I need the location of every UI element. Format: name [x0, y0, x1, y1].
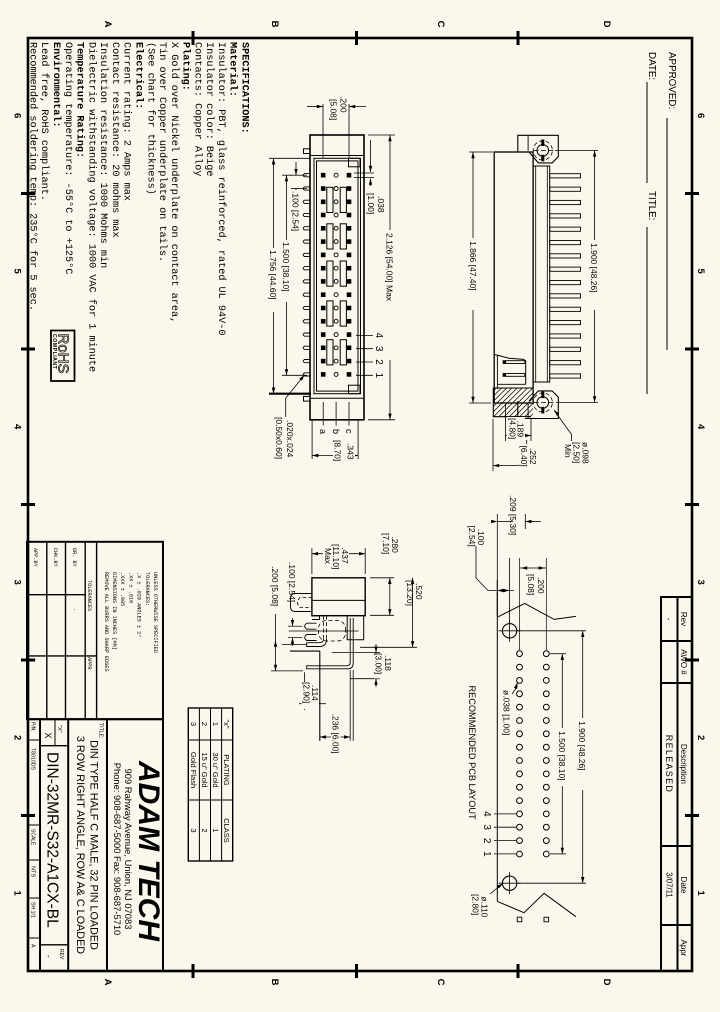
- svg-text:Date: Date: [679, 877, 688, 894]
- svg-text:3: 3: [373, 346, 384, 352]
- svg-text:[2.80]: [2.80]: [471, 894, 481, 915]
- svg-text:COMPLIANT: COMPLIANT: [51, 334, 57, 370]
- svg-text:2: 2: [200, 722, 209, 726]
- svg-text:2.126 [54.00] Max: 2.126 [54.00] Max: [385, 233, 395, 302]
- svg-text:Plating:: Plating:: [180, 42, 192, 91]
- svg-text:CHK.BY: CHK.BY: [52, 548, 58, 568]
- svg-text:[0.50x0.60]: [0.50x0.60]: [274, 417, 284, 459]
- svg-text:[5.08]: [5.08]: [329, 99, 339, 120]
- svg-text:-: -: [32, 658, 38, 661]
- svg-text:Min: Min: [563, 444, 573, 458]
- svg-text:"X": "X": [56, 725, 62, 733]
- svg-text:"x": "x": [222, 719, 231, 728]
- svg-text:1.756 [44.60]: 1.756 [44.60]: [268, 250, 278, 300]
- svg-text:b: b: [331, 429, 341, 434]
- svg-text:TITLE:: TITLE:: [98, 723, 104, 739]
- svg-text:AWO #: AWO #: [679, 649, 688, 675]
- svg-text:Appr: Appr: [679, 940, 688, 957]
- svg-text:.200 [5.08]: .200 [5.08]: [270, 566, 280, 606]
- svg-text:Contacts: Copper Alloy: Contacts: Copper Alloy: [191, 42, 203, 177]
- svg-text:.XXX ± .005: .XXX ± .005: [119, 572, 125, 606]
- svg-text:3/07/11: 3/07/11: [665, 872, 674, 897]
- svg-text:.100 [2.54]: .100 [2.54]: [291, 191, 301, 231]
- svg-text:(See chart for thickness): (See chart for thickness): [144, 42, 156, 195]
- svg-text:Dielectric withstanding voltag: Dielectric withstanding voltage: 1000 VA…: [85, 42, 97, 372]
- svg-text:B: B: [269, 979, 280, 986]
- svg-text:REV: REV: [58, 949, 64, 960]
- svg-text:PLATING: PLATING: [222, 754, 231, 786]
- svg-text:TOLERANCES: TOLERANCES: [86, 580, 92, 611]
- svg-text:Material:: Material:: [227, 42, 239, 97]
- svg-text:Max: Max: [323, 548, 333, 565]
- svg-text:4: 4: [481, 811, 492, 817]
- svg-text:[6.40]: [6.40]: [519, 446, 529, 467]
- svg-text:Lead free, RoHS compliant.: Lead free, RoHS compliant.: [38, 42, 50, 201]
- svg-text:DIN TYPE HALF C MALE, 32 PIN L: DIN TYPE HALF C MALE, 32 PIN LOADED: [88, 740, 100, 950]
- svg-text:.343: .343: [346, 443, 356, 460]
- svg-text:1: 1: [211, 722, 220, 726]
- svg-text:TITLE:: TITLE:: [646, 191, 657, 220]
- svg-text:1.900 [48.26]: 1.900 [48.26]: [577, 721, 587, 771]
- svg-text:[3.00]: [3.00]: [374, 653, 384, 674]
- svg-text:[5.08]: [5.08]: [526, 574, 536, 595]
- svg-text:30 u" Gold: 30 u" Gold: [211, 752, 220, 787]
- svg-text:REMOVE ALL BURRS AND SHARP EDG: REMOVE ALL BURRS AND SHARP EDGES: [103, 572, 109, 672]
- svg-text:A: A: [102, 21, 113, 28]
- svg-text:-: -: [44, 955, 53, 958]
- svg-text:T8010DS: T8010DS: [30, 748, 36, 770]
- svg-text:1: 1: [481, 851, 492, 857]
- svg-text:P/N:: P/N:: [30, 722, 36, 732]
- svg-text:Phone: 908-687-5000 Fax: 908-6: Phone: 908-687-5000 Fax: 908-687-5710: [112, 763, 123, 936]
- svg-text:2: 2: [12, 735, 23, 740]
- svg-text:ADAM TECH: ADAM TECH: [132, 760, 165, 942]
- svg-text:1: 1: [695, 891, 706, 897]
- svg-text:6: 6: [12, 113, 23, 118]
- svg-text:B: B: [269, 21, 280, 28]
- svg-text:TOLERANCES:: TOLERANCES:: [144, 572, 150, 606]
- svg-text:1.900 [48.26]: 1.900 [48.26]: [589, 243, 599, 293]
- svg-text:Recommended soldering temp: 23: Recommended soldering temp: 235°C for 5 …: [27, 42, 39, 311]
- svg-text:Tin over Copper underplate on: Tin over Copper underplate on tails.: [156, 42, 168, 262]
- svg-text:2: 2: [200, 828, 209, 832]
- svg-text:SCALE: SCALE: [30, 829, 36, 846]
- svg-text:.020x.024: .020x.024: [285, 420, 295, 458]
- svg-text:Current rating: 2 Amps max: Current rating: 2 Amps max: [121, 42, 133, 201]
- svg-text:Electrical:: Electrical:: [133, 42, 145, 109]
- svg-text:X Gold over Nickel underplate: X Gold over Nickel underplate on contact…: [168, 42, 180, 323]
- svg-text:3 ROW RIGHT ANGLE, ROW A& C LO: 3 ROW RIGHT ANGLE, ROW A& C LOADED: [74, 736, 86, 954]
- svg-text:1.500 [38.10]: 1.500 [38.10]: [557, 731, 567, 781]
- svg-text:A: A: [102, 979, 113, 986]
- svg-text:X: X: [43, 733, 53, 739]
- svg-text:DR. BY: DR. BY: [71, 548, 77, 568]
- svg-text:15 u" Gold: 15 u" Gold: [200, 752, 209, 787]
- svg-text:.XX ± .010: .XX ± .010: [127, 572, 133, 603]
- svg-text:C: C: [435, 979, 446, 986]
- svg-text:[2.54]: [2.54]: [467, 526, 477, 547]
- svg-text:[1.00]: [1.00]: [366, 193, 376, 214]
- svg-text:SH 1/1: SH 1/1: [30, 902, 36, 918]
- svg-text:CLASS: CLASS: [222, 818, 231, 843]
- svg-text:909 Rahway Avenue, Union, NJ 0: 909 Rahway Avenue, Union, NJ 07083: [123, 769, 134, 930]
- svg-text:Temperature Rating:: Temperature Rating:: [74, 42, 86, 158]
- svg-text:UNLESS OTHERWISE SPECIFIED: UNLESS OTHERWISE SPECIFIED: [152, 572, 158, 653]
- svg-text:APP.BY: APP.BY: [32, 548, 38, 568]
- svg-text:.118: .118: [383, 655, 393, 671]
- svg-text:RELEASED: RELEASED: [664, 735, 674, 793]
- svg-text:.038: .038: [376, 196, 386, 213]
- svg-text:Environmental:: Environmental:: [50, 42, 62, 128]
- svg-text:[7.10]: [7.10]: [381, 533, 391, 554]
- svg-text:C: C: [435, 21, 446, 28]
- svg-text:Description: Description: [679, 744, 688, 784]
- svg-text:APPROVED:: APPROVED:: [666, 52, 677, 109]
- svg-text:DIN-32MR-S32-A1CX-BL: DIN-32MR-S32-A1CX-BL: [44, 752, 61, 928]
- svg-text:.200: .200: [536, 577, 546, 594]
- svg-text:DATE:: DATE:: [646, 52, 657, 80]
- svg-text:[2.90]: [2.90]: [302, 682, 312, 703]
- svg-text:4: 4: [12, 424, 23, 430]
- svg-text:[4.80]: [4.80]: [508, 418, 518, 439]
- svg-text:NTS: NTS: [30, 866, 36, 877]
- svg-text:4: 4: [695, 424, 706, 430]
- svg-text:[8.70]: [8.70]: [333, 440, 343, 461]
- svg-text:.100 [2.54]: .100 [2.54]: [287, 562, 297, 602]
- svg-text:ø.038 [1.00]: ø.038 [1.00]: [502, 690, 512, 735]
- svg-text:SPECIFICATIONS:: SPECIFICATIONS:: [239, 42, 250, 134]
- svg-text:.236 [6.00]: .236 [6.00]: [331, 714, 341, 754]
- svg-text:a: a: [318, 429, 328, 434]
- svg-text:Gold Flash: Gold Flash: [189, 752, 198, 788]
- svg-text:3: 3: [189, 722, 198, 726]
- svg-text:DIMENSIONS IN INCHES [MM]: DIMENSIONS IN INCHES [MM]: [111, 572, 117, 650]
- svg-text:1: 1: [373, 373, 384, 379]
- svg-text:-: -: [71, 608, 77, 611]
- svg-text:1: 1: [211, 828, 220, 832]
- svg-text:5: 5: [695, 269, 706, 275]
- svg-text:Operating temperature: -55°C t: Operating temperature: -55°C to +125°C: [62, 42, 74, 274]
- svg-text:-: -: [664, 618, 673, 621]
- svg-text:2: 2: [481, 838, 492, 844]
- svg-text:A: A: [30, 944, 36, 948]
- svg-text:D: D: [601, 21, 612, 28]
- svg-text:Insulator color: Beige: Insulator color: Beige: [203, 42, 215, 177]
- svg-text:Rev: Rev: [679, 612, 688, 626]
- svg-text:3: 3: [481, 824, 492, 830]
- svg-text:RECOMMENDED PCB LAYOUT: RECOMMENDED PCB LAYOUT: [467, 686, 477, 820]
- svg-text:6: 6: [695, 113, 706, 118]
- svg-text:.X ± .020 ANGLES ± 2°: .X ± .020 ANGLES ± 2°: [136, 572, 142, 637]
- svg-text:2: 2: [695, 735, 706, 740]
- svg-text:D: D: [601, 979, 612, 986]
- svg-text:.209 [5.30]: .209 [5.30]: [508, 495, 518, 535]
- svg-text:5: 5: [12, 269, 23, 275]
- svg-text:Insulator: PBT, glass reinforc: Insulator: PBT, glass reinforced, rated …: [215, 42, 227, 335]
- svg-text:4: 4: [373, 333, 384, 339]
- svg-text:Insulation resistance: 1000 Mo: Insulation resistance: 1000 Mohms min: [97, 42, 109, 268]
- svg-text:c: c: [344, 429, 354, 434]
- svg-text:.200: .200: [339, 96, 349, 113]
- svg-text:1.500 [38.10]: 1.500 [38.10]: [281, 242, 291, 292]
- svg-text:[13.20]: [13.20]: [405, 580, 415, 606]
- svg-text:Contact resistance: 20 mohms m: Contact resistance: 20 mohms max: [109, 42, 121, 238]
- svg-text:APPR: APPR: [86, 657, 92, 669]
- svg-text:1: 1: [12, 891, 23, 897]
- svg-text:2: 2: [373, 359, 384, 365]
- svg-text:3: 3: [189, 828, 198, 832]
- svg-text:3: 3: [12, 580, 23, 585]
- svg-text:1.866 [47.40]: 1.866 [47.40]: [468, 241, 478, 291]
- svg-text:3: 3: [695, 580, 706, 585]
